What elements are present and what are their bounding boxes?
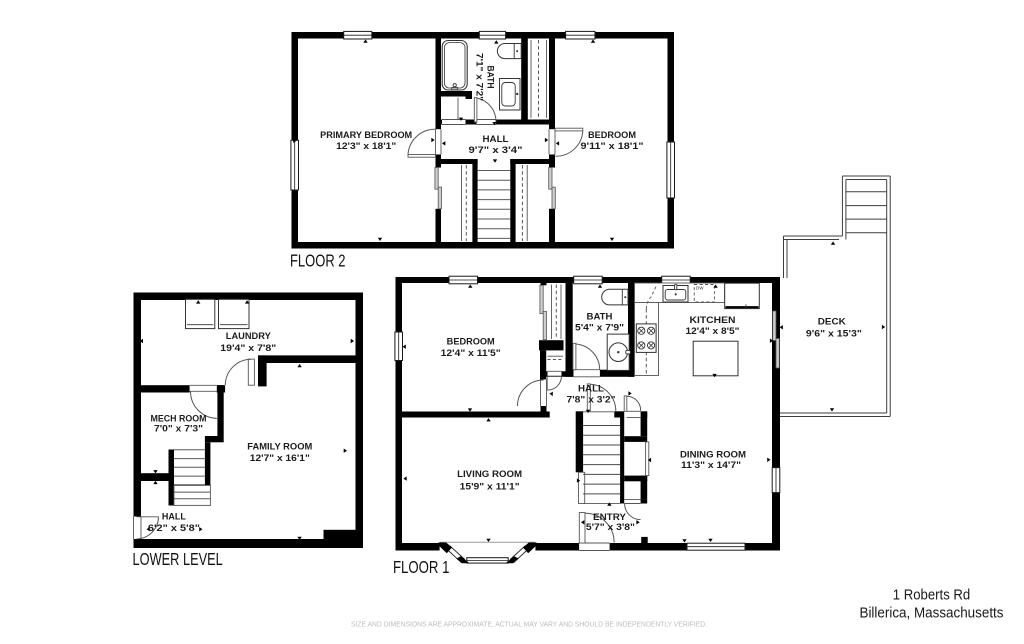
svg-text:Billerica, Massachusetts: Billerica, Massachusetts [860, 606, 1004, 622]
svg-text:FLOOR 2: FLOOR 2 [290, 250, 346, 270]
svg-text:12'4" x 11'5": 12'4" x 11'5" [441, 348, 501, 358]
svg-text:DW: DW [696, 286, 704, 291]
svg-text:12'7" x 16'1": 12'7" x 16'1" [250, 453, 310, 463]
svg-text:PRIMARY BEDROOM: PRIMARY BEDROOM [320, 130, 412, 140]
svg-text:9'11" x 18'1": 9'11" x 18'1" [581, 141, 644, 151]
svg-text:FLOOR 1: FLOOR 1 [393, 557, 449, 577]
svg-text:HALL: HALL [162, 512, 186, 522]
svg-text:15'9" x 11'1": 15'9" x 11'1" [460, 482, 520, 492]
svg-text:BEDROOM: BEDROOM [588, 130, 636, 140]
svg-text:MECH ROOM: MECH ROOM [151, 413, 207, 423]
svg-text:9'7" x 3'4": 9'7" x 3'4" [469, 145, 523, 155]
svg-text:DINING ROOM: DINING ROOM [680, 450, 746, 460]
svg-text:LAUNDRY: LAUNDRY [226, 331, 271, 341]
svg-text:5'4" x 7'9": 5'4" x 7'9" [575, 323, 624, 333]
svg-text:LOWER LEVEL: LOWER LEVEL [133, 549, 223, 569]
svg-text:7'8" x 3'2": 7'8" x 3'2" [567, 395, 616, 405]
svg-text:6'2" x 5'8": 6'2" x 5'8" [148, 523, 200, 533]
svg-text:LIVING ROOM: LIVING ROOM [457, 469, 522, 479]
svg-text:12'3" x 18'1": 12'3" x 18'1" [336, 141, 396, 151]
svg-text:12'4" x 8'5": 12'4" x 8'5" [686, 326, 740, 336]
svg-text:BATH: BATH [587, 312, 613, 322]
svg-text:FAMILY ROOM: FAMILY ROOM [247, 442, 312, 452]
svg-text:ENTRY: ENTRY [593, 512, 626, 522]
svg-text:KITCHEN: KITCHEN [690, 315, 736, 325]
svg-text:1 Roberts Rd: 1 Roberts Rd [893, 587, 971, 603]
svg-text:11'3" x 14'7": 11'3" x 14'7" [681, 460, 741, 470]
svg-text:19'4" x 7'8": 19'4" x 7'8" [220, 343, 276, 353]
svg-text:SIZE AND DIMENSIONS ARE APPROX: SIZE AND DIMENSIONS ARE APPROXIMATE, ACT… [351, 619, 707, 628]
svg-text:BEDROOM: BEDROOM [447, 337, 495, 347]
svg-text:BATH: BATH [486, 66, 496, 89]
svg-text:9'6" x 15'3": 9'6" x 15'3" [806, 328, 862, 338]
svg-text:HALL: HALL [483, 134, 509, 144]
svg-text:7'0" x 7'3": 7'0" x 7'3" [154, 423, 203, 433]
svg-text:5'7" x 3'8": 5'7" x 3'8" [586, 522, 635, 532]
svg-text:DECK: DECK [818, 317, 846, 327]
svg-text:HALL: HALL [578, 384, 604, 394]
svg-text:7'1" x 7'2": 7'1" x 7'2" [475, 53, 485, 101]
